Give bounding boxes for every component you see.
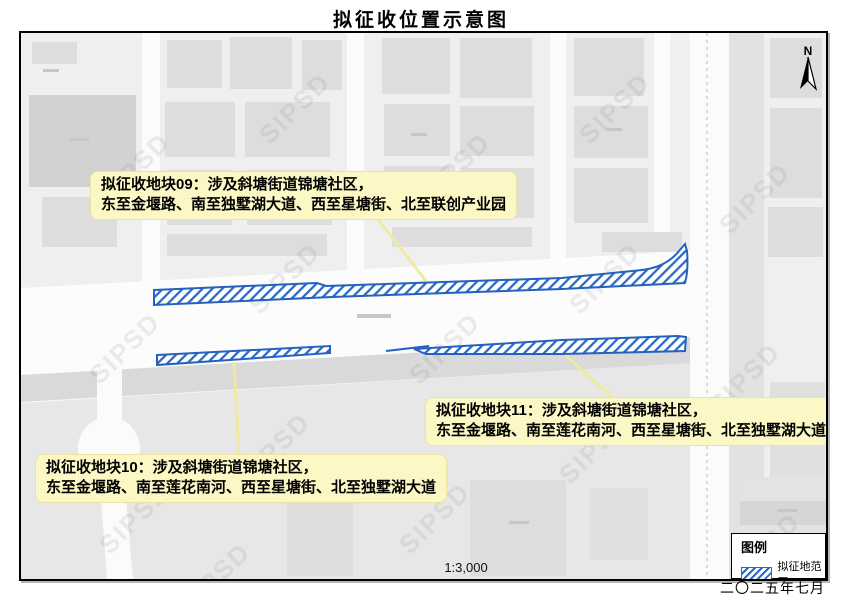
callout-plot-10: 拟征收地块10：涉及斜塘街道锦塘社区， 东至金堰路、南至莲花南河、西至星塘街、北… <box>35 454 447 503</box>
legend-item: 拟征地范围 <box>741 558 825 581</box>
callout-plot-11: 拟征收地块11：涉及斜塘街道锦塘社区， 东至金堰路、南至莲花南河、西至星塘街、北… <box>425 397 828 446</box>
north-label: N <box>795 45 821 57</box>
vertical-road <box>690 33 729 579</box>
north-arrow: N <box>795 45 821 57</box>
map-date: 二〇二五年七月 <box>720 578 825 595</box>
callout-10-line2: 东至金堰路、南至莲花南河、西至星塘街、北至独墅湖大道 <box>46 478 436 498</box>
map-scale: 1:3,000 <box>406 560 526 575</box>
callout-09-line2: 东至金堰路、南至独墅湖大道、西至星塘街、北至联创产业园 <box>101 195 506 215</box>
acquisition-area-swatch <box>741 567 772 581</box>
callout-plot-09: 拟征收地块09：涉及斜塘街道锦塘社区， 东至金堰路、南至独墅湖大道、西至星塘街、… <box>90 171 517 220</box>
callout-11-line2: 东至金堰路、南至莲花南河、西至星塘街、北至独墅湖大道 <box>436 421 826 441</box>
map-frame: N 拟征收地块09：涉及斜塘街道锦塘社区， 东至金堰路、南至独墅湖大道、西至星塘… <box>19 31 828 581</box>
page-title: 拟征收位置示意图 <box>0 5 842 32</box>
page: 拟征收位置示意图 <box>0 0 842 595</box>
callout-11-line1: 拟征收地块11：涉及斜塘街道锦塘社区， <box>436 401 826 421</box>
legend-title: 图例 <box>741 537 825 556</box>
callout-10-line1: 拟征收地块10：涉及斜塘街道锦塘社区， <box>46 458 436 478</box>
legend-item-label: 拟征地范围 <box>778 558 826 581</box>
callout-09-line1: 拟征收地块09：涉及斜塘街道锦塘社区， <box>101 175 506 195</box>
legend-box: 图例 拟征地范围 <box>731 533 826 579</box>
